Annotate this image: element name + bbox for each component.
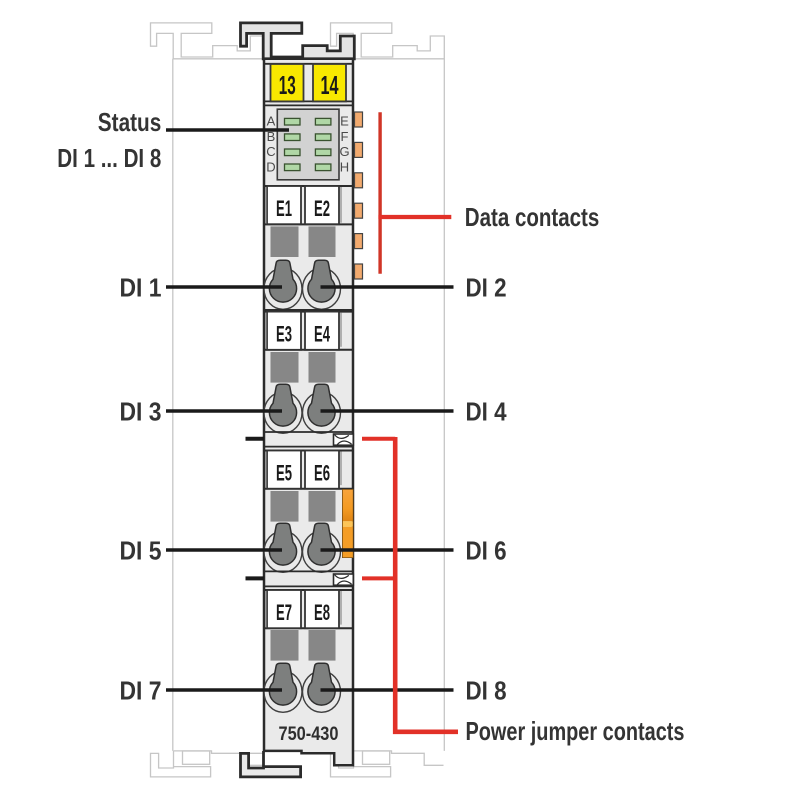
svg-text:Data contacts: Data contacts: [465, 202, 600, 232]
svg-text:E: E: [340, 114, 349, 129]
svg-text:Status: Status: [98, 107, 162, 137]
svg-text:DI 2: DI 2: [466, 272, 507, 302]
svg-text:E5: E5: [276, 461, 292, 486]
svg-text:G: G: [339, 144, 349, 159]
svg-text:DI 1: DI 1: [120, 272, 162, 302]
svg-text:C: C: [266, 144, 275, 159]
svg-text:A: A: [267, 114, 276, 129]
svg-text:F: F: [341, 129, 349, 144]
svg-text:D: D: [266, 159, 275, 174]
svg-text:E1: E1: [276, 196, 292, 221]
svg-text:14: 14: [321, 72, 340, 100]
svg-text:DI 6: DI 6: [466, 535, 507, 565]
svg-text:Power jumper contacts: Power jumper contacts: [466, 716, 685, 746]
svg-text:DI 7: DI 7: [120, 675, 162, 705]
svg-text:E8: E8: [314, 600, 330, 625]
svg-text:E7: E7: [276, 600, 292, 625]
svg-text:E6: E6: [314, 461, 330, 486]
svg-text:DI 4: DI 4: [466, 396, 507, 426]
svg-text:750-430: 750-430: [279, 724, 339, 745]
svg-text:E2: E2: [314, 196, 330, 221]
svg-text:DI 1 ... DI 8: DI 1 ... DI 8: [57, 143, 161, 173]
svg-text:DI 8: DI 8: [466, 675, 507, 705]
svg-text:13: 13: [279, 72, 296, 100]
svg-text:DI 3: DI 3: [120, 396, 162, 426]
svg-text:E3: E3: [276, 322, 292, 347]
svg-text:DI 5: DI 5: [120, 535, 162, 565]
svg-text:E4: E4: [314, 322, 330, 347]
svg-text:H: H: [340, 159, 349, 174]
